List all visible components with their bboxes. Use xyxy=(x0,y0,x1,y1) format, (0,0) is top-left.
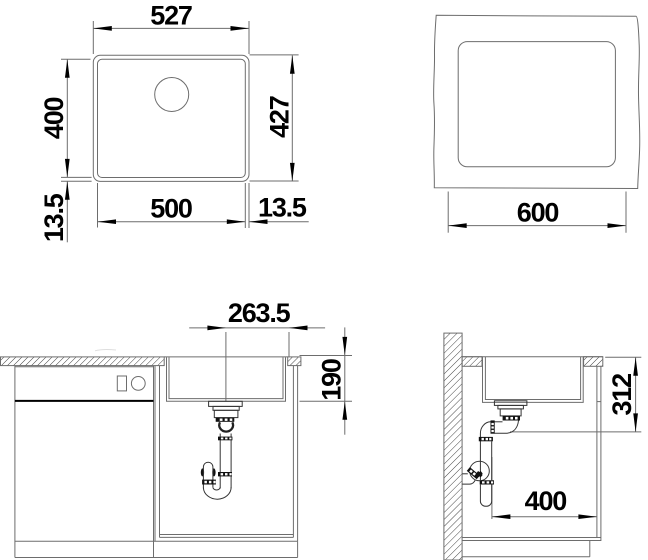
svg-text:600: 600 xyxy=(517,198,559,228)
svg-text:13.5: 13.5 xyxy=(258,193,307,223)
svg-text:527: 527 xyxy=(150,1,192,31)
svg-text:500: 500 xyxy=(150,194,192,224)
svg-text:263.5: 263.5 xyxy=(228,298,291,328)
svg-text:400: 400 xyxy=(525,486,567,516)
svg-text:190: 190 xyxy=(317,359,347,401)
svg-text:13.5: 13.5 xyxy=(39,193,69,242)
svg-text:427: 427 xyxy=(265,96,295,138)
svg-text:312: 312 xyxy=(607,374,637,416)
svg-text:400: 400 xyxy=(39,97,69,139)
